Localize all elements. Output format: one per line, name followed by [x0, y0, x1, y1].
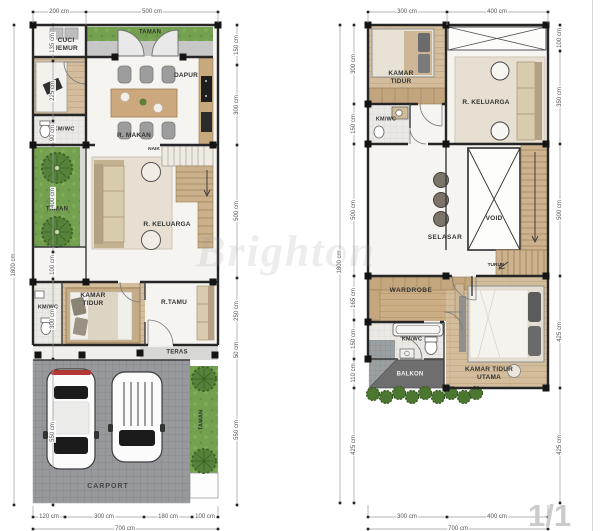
- room-label-r-keluarga: R. KELUARGA: [143, 221, 190, 229]
- void-box: [468, 148, 520, 250]
- sheet-border-line: [592, 0, 593, 531]
- dim-ground-left-4: 100 cm: [50, 254, 56, 276]
- dining-set: [111, 66, 177, 139]
- room-label-taman-front: TAMAN: [199, 410, 206, 430]
- toilet-icon-1: [40, 121, 50, 138]
- floor-plan-canvas: Brighton 1/1 TAMAN CUCI JEMUR DAPUR KM/W…: [0, 0, 600, 531]
- upper-floor-plan: [339, 11, 562, 531]
- dim-ground-top-1: 500 cm: [141, 9, 163, 15]
- dim-ground-bottom-2: 180 cm: [157, 514, 179, 520]
- dim-upper-bottom-1: 400 cm: [486, 514, 508, 520]
- dim-ground-right-5: 550 cm: [234, 419, 240, 441]
- dim-ground-left-2: 90 cm: [50, 124, 56, 142]
- room-label-kamar-tidur-utama: KAMAR TIDUR UTAMA: [463, 366, 515, 382]
- dim-upper-left-1: 150 cm: [351, 113, 357, 135]
- dim-ground-left-1: 225 cm: [50, 80, 56, 102]
- dim-ground-left-5: 300 cm: [50, 308, 56, 330]
- dim-upper-left-total: 1800 cm: [337, 249, 343, 274]
- car-1: [43, 369, 99, 469]
- dim-upper-top-0: 300 cm: [396, 9, 418, 15]
- room-label-carport: CARPORT: [87, 483, 129, 491]
- dim-upper-left-6: 425 cm: [351, 434, 357, 456]
- room-label-r-tamu: R.TAMU: [161, 299, 187, 307]
- dim-upper-right-4: 425 cm: [557, 434, 563, 456]
- dim-ground-left-total: 1800 cm: [11, 252, 17, 277]
- dim-ground-bottom-3: 100 cm: [194, 514, 216, 520]
- dim-upper-left-3: 165 cm: [351, 287, 357, 309]
- dim-ground-bottom-total: 700 cm: [114, 526, 136, 531]
- room-label-cuci-jemur: CUCI JEMUR: [52, 37, 80, 53]
- dim-ground-left-0: 135 cm: [50, 32, 56, 54]
- room-label-balkon: BALKON: [397, 371, 424, 378]
- dim-ground-right-3: 250 cm: [234, 300, 240, 322]
- dim-ground-right-0: 150 cm: [234, 34, 240, 56]
- dim-ground-right-1: 300 cm: [234, 94, 240, 116]
- dim-upper-right-3: 425 cm: [557, 321, 563, 343]
- dim-upper-right-2: 500 cm: [557, 199, 563, 221]
- dim-ground-bottom-0: 120 cm: [38, 514, 60, 520]
- dim-ground-left-6: 550 cm: [50, 421, 56, 443]
- ground-floor-plan: [13, 11, 239, 531]
- stair-label-turun: TURUN: [488, 263, 505, 269]
- roof-x-strip: [448, 27, 546, 50]
- page-number: 1/1: [528, 500, 571, 531]
- dim-ground-right-4: 50 cm: [234, 341, 240, 359]
- room-label-kamar-tidur-upper: KAMAR TIDUR: [386, 70, 416, 86]
- room-label-teras: TERAS: [166, 349, 187, 356]
- dim-ground-left-3: 400 cm: [50, 187, 56, 209]
- stair-label-naik: NAIK: [148, 147, 160, 153]
- dim-upper-right-1: 350 cm: [557, 86, 563, 108]
- room-label-wardrobe: WARDROBE: [390, 287, 433, 295]
- dim-upper-left-4: 150 cm: [351, 328, 357, 350]
- room-label-taman-top: TAMAN: [139, 29, 161, 36]
- dim-upper-right-0: 100 cm: [557, 27, 563, 49]
- dim-upper-left-2: 500 cm: [351, 199, 357, 221]
- plan-graphics: [0, 0, 600, 531]
- dim-upper-left-0: 300 cm: [351, 53, 357, 75]
- room-label-kamar-tidur-ground: KAMAR TIDUR: [78, 292, 108, 308]
- room-label-r-keluarga-upper: R. KELUARGA: [462, 99, 509, 107]
- guest-sofa-icon: [197, 286, 214, 340]
- dim-upper-bottom-total: 700 cm: [447, 526, 469, 531]
- car-2: [108, 372, 165, 462]
- room-label-void: VOID: [486, 215, 503, 223]
- dim-upper-bottom-0: 300 cm: [396, 514, 418, 520]
- room-label-selasar: SELASAR: [428, 234, 463, 242]
- room-label-kmwc-1: KM/WC: [53, 127, 74, 134]
- room-label-dapur: DAPUR: [174, 72, 198, 80]
- dim-upper-left-5: 110 cm: [351, 362, 357, 383]
- room-label-kmwc-upper-2: KM/WC: [402, 337, 422, 344]
- dim-ground-bottom-1: 300 cm: [93, 514, 115, 520]
- dim-ground-top-0: 200 cm: [48, 9, 70, 15]
- room-label-r-makan: R. MAKAN: [117, 132, 151, 140]
- dim-ground-right-2: 500 cm: [234, 200, 240, 222]
- entry-walkway: [86, 41, 213, 56]
- kitchen-counter: [199, 58, 213, 145]
- family-room-furniture: [92, 157, 172, 250]
- dim-upper-top-1: 400 cm: [486, 9, 508, 15]
- room-label-kmwc-upper-1: KM/WC: [376, 117, 396, 124]
